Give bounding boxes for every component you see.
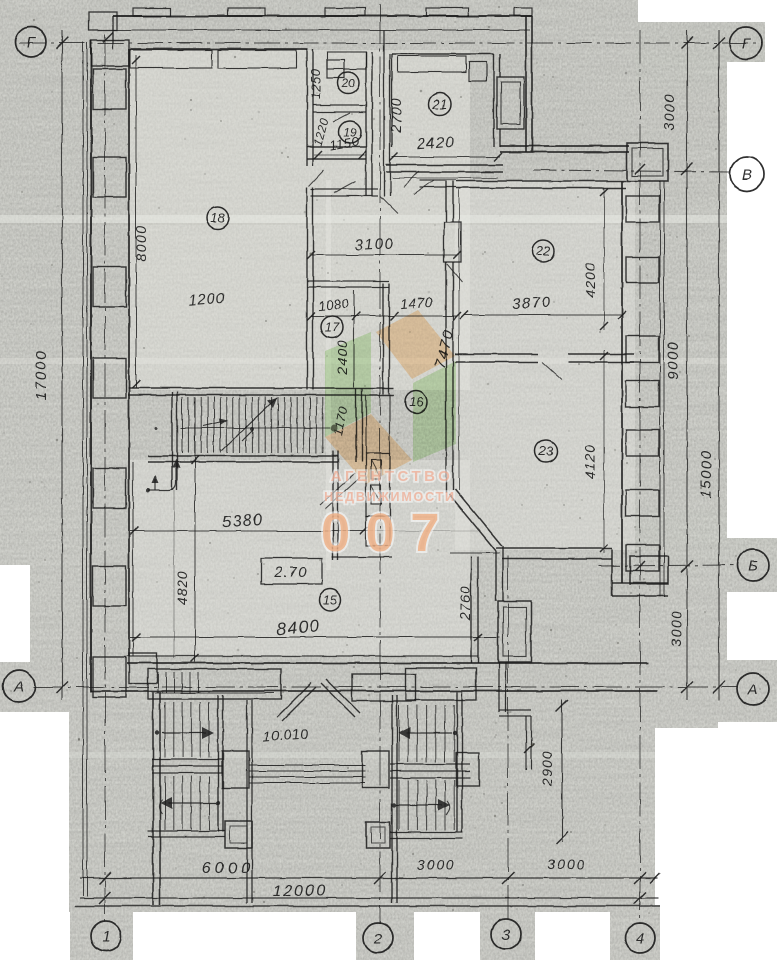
svg-text:15000: 15000 xyxy=(698,449,715,498)
svg-text:НЕДВИЖИМОСТИ: НЕДВИЖИМОСТИ xyxy=(324,490,456,504)
svg-text:6000: 6000 xyxy=(202,860,254,877)
svg-text:12000: 12000 xyxy=(273,883,328,900)
svg-text:007: 007 xyxy=(321,503,455,563)
svg-text:А: А xyxy=(747,681,758,698)
svg-text:21: 21 xyxy=(432,97,447,112)
svg-text:10.010: 10.010 xyxy=(262,725,309,744)
svg-text:4820: 4820 xyxy=(174,570,190,605)
svg-text:4200: 4200 xyxy=(582,262,598,297)
svg-text:9000: 9000 xyxy=(665,340,682,379)
svg-text:3: 3 xyxy=(502,926,511,943)
svg-text:17000: 17000 xyxy=(33,349,50,401)
svg-text:2760: 2760 xyxy=(457,585,473,621)
svg-text:3000: 3000 xyxy=(547,856,586,872)
svg-text:2900: 2900 xyxy=(539,750,555,786)
svg-text:3100: 3100 xyxy=(355,235,395,254)
svg-text:4120: 4120 xyxy=(582,444,598,479)
svg-text:1250: 1250 xyxy=(308,68,323,99)
svg-text:3870: 3870 xyxy=(512,294,552,313)
svg-text:2420: 2420 xyxy=(415,134,454,154)
svg-text:20: 20 xyxy=(340,76,355,90)
svg-text:А: А xyxy=(13,678,24,695)
svg-text:1470: 1470 xyxy=(400,294,434,312)
svg-text:3000: 3000 xyxy=(416,857,455,873)
svg-text:2.70: 2.70 xyxy=(273,564,307,581)
svg-text:4: 4 xyxy=(636,930,644,947)
svg-text:15: 15 xyxy=(323,593,338,608)
svg-text:3000: 3000 xyxy=(668,609,684,646)
svg-text:Б: Б xyxy=(748,557,758,574)
svg-text:АГЕНТСТВО: АГЕНТСТВО xyxy=(331,468,454,485)
svg-text:1: 1 xyxy=(102,928,110,945)
svg-text:18: 18 xyxy=(211,211,226,226)
svg-text:8400: 8400 xyxy=(276,616,321,639)
svg-text:В: В xyxy=(742,166,752,183)
svg-text:2700: 2700 xyxy=(388,97,404,133)
svg-text:5380: 5380 xyxy=(222,512,264,531)
svg-text:1200: 1200 xyxy=(187,290,225,310)
svg-text:22: 22 xyxy=(535,244,551,259)
svg-text:2: 2 xyxy=(373,930,383,947)
svg-text:17: 17 xyxy=(325,320,340,335)
svg-text:3000: 3000 xyxy=(661,93,677,130)
svg-text:8000: 8000 xyxy=(133,224,149,261)
svg-text:23: 23 xyxy=(538,444,554,459)
